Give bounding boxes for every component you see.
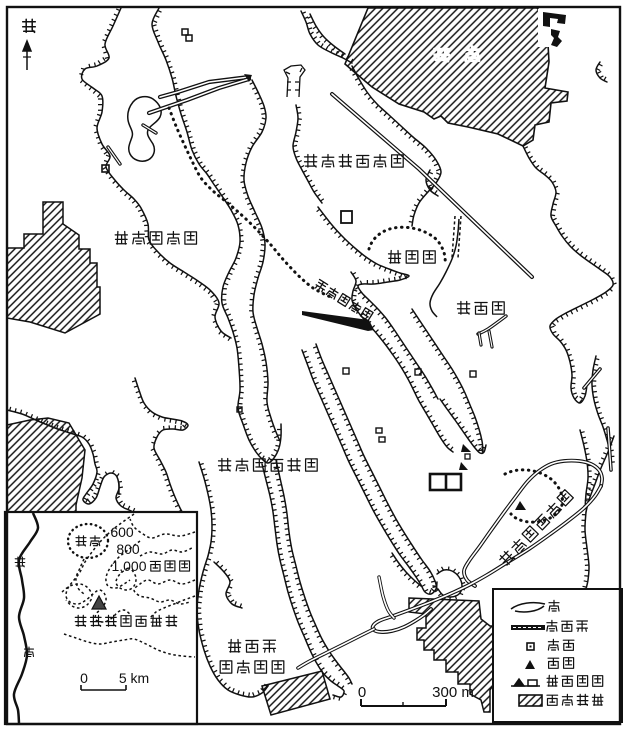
svg-text:1,000: 1,000 bbox=[111, 558, 146, 574]
svg-text:5 km: 5 km bbox=[119, 670, 149, 686]
svg-text:800: 800 bbox=[116, 541, 140, 557]
svg-text:300 m: 300 m bbox=[432, 684, 474, 701]
svg-text:600: 600 bbox=[110, 524, 134, 540]
svg-text:0: 0 bbox=[80, 670, 88, 686]
svg-text:0: 0 bbox=[358, 684, 366, 701]
